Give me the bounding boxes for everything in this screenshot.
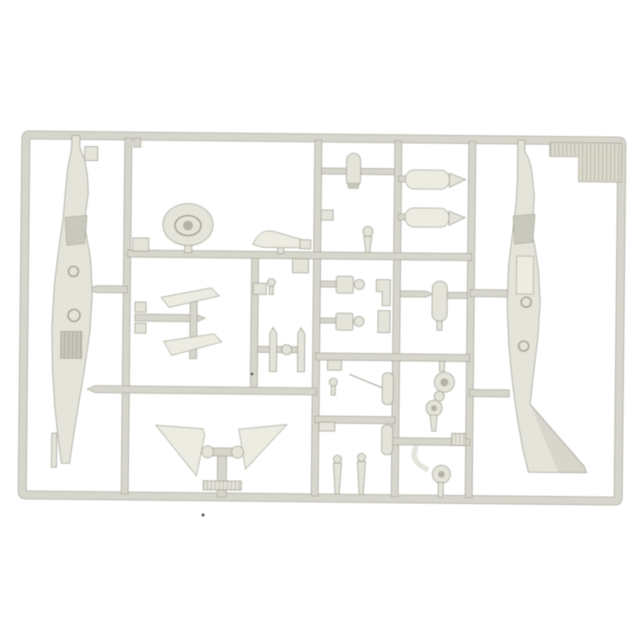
runner-h1-right-stub — [470, 290, 510, 297]
intake-stub-b — [320, 318, 336, 323]
bomb-side-1 — [382, 373, 393, 405]
figure-1-head — [333, 455, 341, 463]
gear-stem-bottom — [438, 482, 443, 497]
bracket-b — [378, 311, 390, 333]
small-pin-head — [267, 278, 275, 286]
runner-v1 — [121, 138, 132, 494]
pod-part — [400, 281, 468, 331]
fuselage-left-cockpit-recess — [65, 215, 87, 245]
speck-below-frame — [201, 513, 204, 516]
intake-box-b — [336, 313, 353, 330]
pilot-top-head — [363, 226, 373, 236]
gate-top-small — [134, 138, 141, 147]
stab-end-block-bottom — [135, 323, 146, 333]
wheel-link-bead — [434, 391, 444, 401]
ribbed-block-texture — [452, 433, 466, 445]
pod-body — [432, 281, 447, 321]
runner-v2 — [250, 253, 258, 393]
gear-block-under-h2 — [327, 360, 341, 370]
bomb-side-2 — [382, 425, 393, 455]
small-block-under-h1 — [292, 259, 308, 273]
fuselage-right-cockpit-recess — [513, 214, 535, 244]
wing-boss-left — [202, 446, 214, 458]
drop-tanks — [398, 170, 466, 228]
nameplate-tag-ridges — [549, 143, 620, 181]
bomb-top-body — [346, 153, 360, 187]
stab-runner-tip — [197, 315, 205, 322]
wing-boss-right — [232, 446, 244, 458]
tank1-body — [405, 170, 449, 189]
pod-stub-right — [447, 292, 467, 298]
fuselage-left-rib-texture — [61, 331, 82, 358]
missile-right — [297, 328, 304, 372]
figure-1-body — [333, 463, 341, 494]
wing-ribbed-texture — [203, 481, 241, 490]
pod-stub-left — [400, 291, 432, 297]
canopy-part — [253, 231, 311, 254]
canopy-body — [253, 231, 307, 248]
intake-ball-a — [354, 279, 364, 289]
stabilizer-set — [135, 287, 223, 359]
block-on-v3-low — [319, 422, 335, 431]
tank2-tip — [449, 211, 465, 225]
fuselage-half-right — [505, 140, 589, 473]
runner-h1-left-stub — [88, 286, 127, 293]
missile-pair — [252, 258, 308, 372]
small-pin-stem — [269, 286, 273, 294]
fuselage-right-panel — [516, 256, 533, 294]
intake-boxes — [320, 276, 391, 333]
figure-2-head — [358, 453, 366, 461]
intake-ball-b — [354, 316, 364, 326]
bomb-top-collar — [348, 183, 358, 188]
stab-runner — [135, 314, 197, 322]
wing-right — [238, 424, 286, 470]
pilot-top-body — [364, 236, 372, 252]
fuselage-half-left — [50, 135, 97, 467]
missile-left — [269, 327, 276, 371]
wheel-chain — [426, 361, 455, 431]
gear-pin-stem — [331, 386, 335, 395]
intake-stub-a — [320, 281, 336, 287]
runner-h6-stub — [469, 390, 509, 397]
stab-end-block-top — [135, 302, 146, 312]
gear-strut — [414, 448, 427, 469]
dome-part — [163, 203, 214, 253]
bomb-crossbar-right — [360, 168, 395, 174]
intake-box-a — [336, 276, 353, 293]
wheel-chain-foot — [430, 415, 437, 431]
photo-stage — [0, 0, 643, 643]
sprue-photo — [0, 0, 643, 643]
fuselage-left-nose-block — [85, 147, 98, 161]
bomb-top-assembly — [321, 153, 395, 253]
tank2-body — [405, 208, 449, 227]
fuselage-left-tail-rod — [51, 433, 56, 467]
missile-bead — [282, 345, 292, 355]
wheel-chain-stem — [439, 361, 444, 371]
gear-pin-head — [329, 378, 337, 386]
block-on-v3 — [321, 210, 333, 220]
bomb-crossbar-left — [322, 168, 348, 174]
pilot-figures — [333, 453, 365, 494]
block-on-h1 — [133, 238, 149, 251]
pod-tail — [437, 321, 442, 330]
fuselage-left-body — [50, 135, 93, 463]
runner-h3 — [87, 386, 316, 395]
nameplate-tag — [549, 142, 621, 182]
speck-on-runner — [251, 373, 254, 376]
ribbed-blocks — [452, 433, 466, 445]
small-block-v2 — [253, 283, 266, 294]
bracket-a — [376, 280, 390, 306]
tank1-tip — [449, 173, 465, 187]
fuselage-right-body — [505, 140, 589, 473]
wing-left — [155, 425, 205, 476]
canopy-side-piece — [300, 240, 311, 249]
figure-2-body — [357, 461, 365, 494]
sprue-group — [18, 131, 626, 505]
